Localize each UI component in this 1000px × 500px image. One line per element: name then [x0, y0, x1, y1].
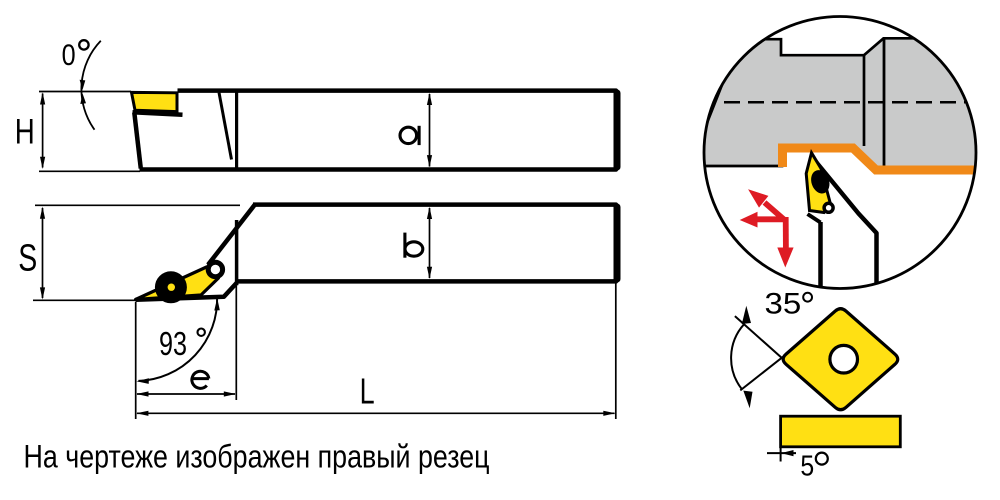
svg-text:На чертеже изображен правый ре: На чертеже изображен правый резец — [24, 439, 490, 475]
svg-text:S: S — [18, 237, 37, 279]
svg-text:35: 35 — [765, 287, 802, 320]
svg-text:0: 0 — [62, 39, 76, 72]
svg-text:H: H — [15, 113, 35, 152]
svg-text:93: 93 — [159, 326, 187, 363]
svg-text:5: 5 — [800, 451, 814, 483]
svg-text:L: L — [360, 371, 375, 412]
